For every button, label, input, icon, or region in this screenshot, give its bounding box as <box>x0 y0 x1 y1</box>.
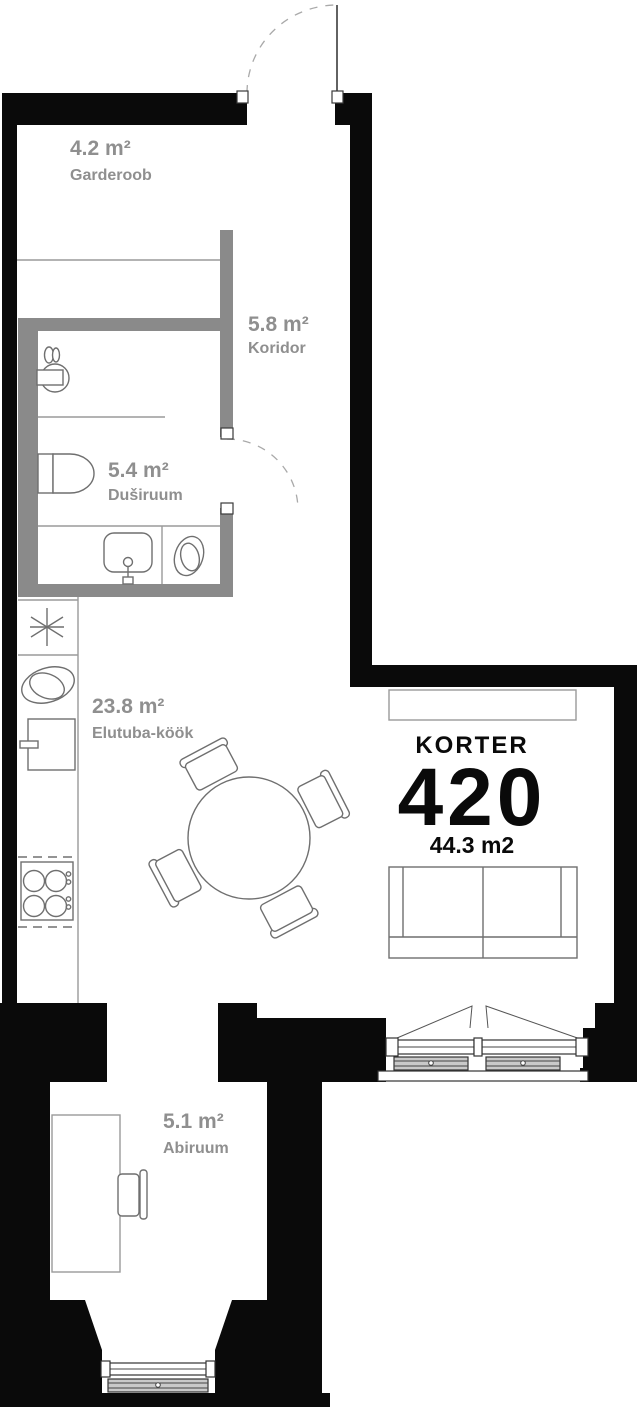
elutuba-area: 23.8 m² <box>92 695 164 718</box>
dusiruum-area: 5.4 m² <box>108 459 169 482</box>
dining-set <box>148 737 351 940</box>
dusiruum-name: Duširuum <box>108 487 183 504</box>
window-opening-line-right <box>486 1006 586 1041</box>
wall-bottom-mid-band <box>218 1003 386 1082</box>
elutuba-label: 23.8 m² Elutuba-köök <box>92 695 193 742</box>
entrance-door-arc <box>247 5 337 93</box>
bathroom-door <box>221 428 298 514</box>
washbasin-icon <box>104 533 152 584</box>
wall-living-top <box>350 665 637 687</box>
sofa-icon <box>389 867 577 958</box>
entrance-door-jamb-left <box>237 91 248 103</box>
abiruum-window <box>101 1361 215 1392</box>
bathroom-wall-right-upper <box>220 230 233 437</box>
wall-right <box>614 687 637 1003</box>
living-room-window <box>378 1006 588 1081</box>
bathroom-door-jamb-bottom <box>221 503 233 514</box>
wall-abiruum-left <box>0 1082 50 1403</box>
washing-machine-icon <box>170 533 209 580</box>
stove-icon <box>18 857 78 927</box>
radiator-right <box>486 1057 560 1070</box>
elutuba-name: Elutuba-köök <box>92 725 193 742</box>
wall-abiruum-bottom <box>0 1393 330 1407</box>
wall-abiruum-right-bay <box>215 1300 267 1393</box>
wall-koridor-right <box>350 93 372 687</box>
wall-top <box>2 93 247 125</box>
entrance-door <box>237 5 343 103</box>
koridor-label: 5.8 m² Koridor <box>248 313 309 357</box>
bathroom-wall-bottom <box>18 584 233 597</box>
abiruum-desk-icon <box>52 1115 147 1272</box>
garderoob-label: 4.2 m² Garderoob <box>70 137 152 184</box>
koridor-area: 5.8 m² <box>248 313 309 336</box>
kitchen-star-icon <box>30 608 64 646</box>
bathroom-door-jamb-top <box>221 428 233 439</box>
apartment-number: 420 <box>398 752 547 843</box>
bathroom-wall-right-lower <box>220 508 233 597</box>
wall-bottom-left-band <box>0 1003 107 1082</box>
entrance-door-jamb-right <box>332 91 343 103</box>
wall-abiruum-left-bay <box>50 1300 102 1393</box>
floor-plan: 4.2 m² Garderoob 5.8 m² Koridor 5.4 m² D… <box>0 0 637 1409</box>
abiruum-name: Abiruum <box>163 1140 229 1157</box>
window-sill <box>378 1071 588 1081</box>
closet-icon <box>389 690 576 720</box>
kitchen-fixtures <box>17 608 79 927</box>
bathroom-wall-left <box>18 318 38 597</box>
kitchen-sink-icon <box>17 660 79 709</box>
wall-abiruum-right <box>267 1082 322 1403</box>
apartment-title: KORTER 420 44.3 m2 <box>398 732 547 858</box>
dining-table-icon <box>188 777 310 899</box>
floor-plan-svg: 4.2 m² Garderoob 5.8 m² Koridor 5.4 m² D… <box>0 0 637 1409</box>
exterior-walls <box>0 93 637 1407</box>
garderoob-name: Garderoob <box>70 167 152 184</box>
abiruum-label: 5.1 m² Abiruum <box>163 1110 229 1157</box>
dusiruum-label: 5.4 m² Duširuum <box>108 459 183 504</box>
garderoob-area: 4.2 m² <box>70 137 131 160</box>
bathroom-door-arc <box>227 439 298 510</box>
fridge-icon <box>20 719 75 770</box>
bathroom-wall-top <box>18 318 233 331</box>
toilet-icon <box>38 454 94 493</box>
radiator-left <box>394 1057 468 1070</box>
abiruum-area: 5.1 m² <box>163 1110 224 1133</box>
apartment-area: 44.3 m2 <box>430 832 514 858</box>
koridor-name: Koridor <box>248 340 306 357</box>
wall-left <box>2 93 17 1003</box>
abiruum-radiator <box>108 1379 208 1392</box>
window-opening-line-left <box>390 1006 472 1041</box>
shower-fixture-icon <box>37 347 69 392</box>
